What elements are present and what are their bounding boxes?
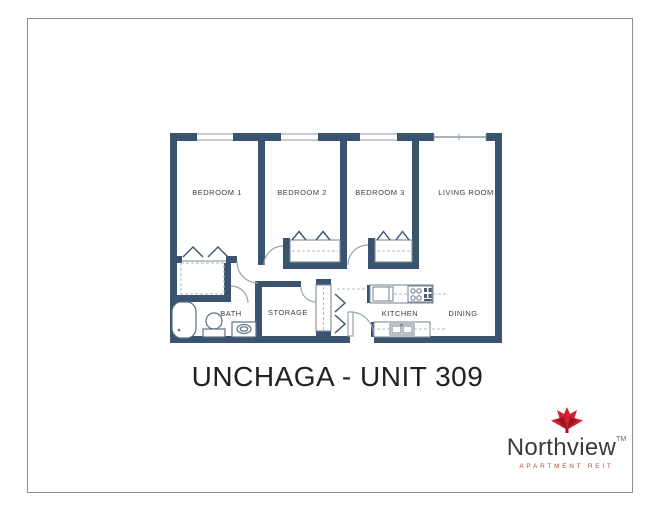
- bedroom2-closet-bifold: [316, 232, 330, 241]
- kitchen-sink-basin: [392, 326, 401, 333]
- wall-segment: [170, 133, 197, 141]
- wall-segment: [397, 133, 434, 141]
- room-label-storage: STORAGE: [268, 308, 308, 317]
- kitchen-sink-basin: [403, 326, 412, 333]
- wall-segment: [283, 262, 347, 269]
- wall-segment: [170, 295, 231, 302]
- brand-tagline: APARTMENT REIT: [500, 463, 633, 470]
- wall-segment: [233, 133, 281, 141]
- wall-segment: [318, 133, 360, 141]
- bedroom3-closet-bifold: [377, 232, 390, 241]
- room-label-living: LIVING ROOM: [438, 188, 494, 197]
- bath-door: [231, 286, 248, 303]
- wall-segment: [495, 133, 502, 343]
- bath-fixtures: [172, 302, 256, 338]
- bathtub: [172, 302, 196, 338]
- bedroom3-door: [348, 245, 368, 265]
- maple-leaf-icon: [547, 406, 587, 434]
- wall-segment: [258, 141, 265, 265]
- room-label-bedroom3: BEDROOM 3: [355, 188, 405, 197]
- bedroom2-window: [281, 133, 318, 141]
- bedroom1-closet-dashed: [181, 263, 224, 294]
- trademark-symbol: TM: [616, 436, 626, 443]
- floor-plan-page: { "title": "UNCHAGA - UNIT 309", "floor_…: [0, 0, 663, 512]
- wall-segment: [368, 262, 419, 269]
- bedroom3-window: [360, 133, 397, 141]
- storage-door: [301, 287, 316, 302]
- wall-segment: [170, 256, 182, 263]
- room-label-bath: BATH: [220, 309, 241, 318]
- bedroom1-closet-bifold: [208, 247, 228, 257]
- brand-name: NorthviewTM: [500, 435, 633, 460]
- fridge: [373, 287, 393, 301]
- kitchen-faucet: [400, 324, 402, 326]
- bedroom2-closet-bifold: [292, 232, 306, 241]
- living-room-window: [434, 134, 486, 140]
- wall-segment: [412, 141, 419, 269]
- bath-sink-basin-inner: [240, 327, 248, 331]
- entry-door: [350, 312, 374, 336]
- bathtub-drain: [178, 329, 181, 332]
- toilet-tank: [203, 329, 225, 337]
- northview-logo: NorthviewTM APARTMENT REIT: [500, 406, 633, 470]
- wall-segment: [340, 141, 347, 269]
- unit-title: UNCHAGA - UNIT 309: [170, 361, 505, 393]
- bedroom1-window: [197, 133, 233, 141]
- room-label-kitchen: KITCHEN: [382, 309, 418, 318]
- bedroom2-door: [264, 246, 283, 265]
- bedroom1-door: [237, 262, 258, 283]
- entry-closet-bifold: [335, 294, 345, 312]
- bedroom1-closet-bifold: [183, 247, 203, 257]
- room-label-dining: DINING: [448, 309, 477, 318]
- wall-segment: [486, 133, 502, 141]
- room-label-bedroom1: BEDROOM 1: [192, 188, 242, 197]
- room-label-bedroom2: BEDROOM 2: [277, 188, 327, 197]
- entry-closet-bifold: [335, 315, 345, 333]
- entry-door-leaf: [348, 312, 353, 336]
- casework: [290, 240, 433, 337]
- bedroom3-closet-bifold: [396, 232, 409, 241]
